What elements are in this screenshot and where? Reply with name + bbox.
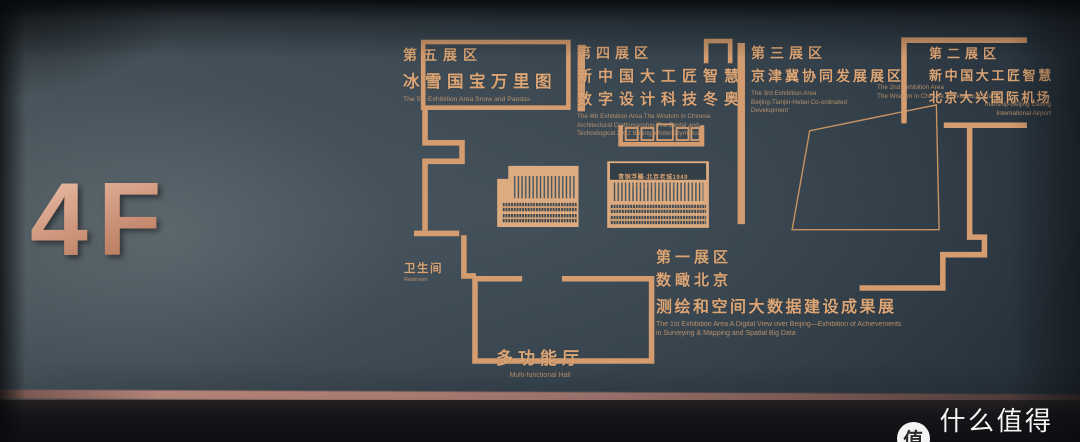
area5-en: The 5th Exhibition Area Snow and Pandas xyxy=(403,96,557,103)
photo-floor-directory-sign: 4F xyxy=(0,0,1080,442)
area1-zh-1: 第一展区 xyxy=(656,246,901,267)
label-area4: 第四展区 新中国大工匠智慧 数字设计科技冬奥 The 4th Exhibitio… xyxy=(577,43,745,139)
smzdm-watermark: 值 什么值得买 xyxy=(897,401,1080,442)
directory-sign-board: 4F xyxy=(0,0,1080,400)
plan-seating-a-screenband xyxy=(514,176,575,198)
area2-en-2: The Wisdom in Chinese Architectural Craf… xyxy=(877,93,1051,102)
area3-zh-1: 第三展区 xyxy=(751,43,904,63)
area4-zh-1: 第四展区 xyxy=(577,43,745,63)
area2-zh-1: 第二展区 xyxy=(929,43,1054,62)
area5-zh-1: 第五展区 xyxy=(403,45,557,65)
area2-en-4: International Airport xyxy=(877,110,1051,119)
area2-en-3: manship-Beijing Daxing xyxy=(877,101,1051,110)
area1-zh-2: 数瞰北京 xyxy=(656,269,901,290)
hall-en: Multi-functional Hall xyxy=(468,372,612,379)
restroom-en: Restroom xyxy=(404,277,443,283)
plan-seating-a-row2-rail xyxy=(503,217,577,219)
smzdm-watermark-text: 什么值得买 xyxy=(940,401,1080,442)
label-multifunctional-hall: 多功能厅 Multi-functional Hall xyxy=(468,344,612,379)
plan-seating-b-row1-rail xyxy=(610,208,706,210)
area4-zh-2: 新中国大工匠智慧 xyxy=(577,65,745,86)
label-exhibit-plaque: 青铜浮雕-北京老城1949 Beijing Old City 1949 xyxy=(601,174,705,192)
plaque-en: Beijing Old City 1949 xyxy=(601,183,705,188)
label-area5: 第五展区 冰雪国宝万里图 The 5th Exhibition Area Sno… xyxy=(403,45,557,103)
restroom-zh: 卫生间 xyxy=(404,260,443,276)
area4-en-1: The 4th Exhibition Area The Wisdom in Ch… xyxy=(577,113,745,122)
area4-zh-3: 数字设计科技冬奥 xyxy=(577,88,745,109)
area1-zh-3: 测绘和空间大数据建设成果展 xyxy=(656,293,901,317)
label-area2-en: The 2nd Exhibition Area The Wisdom in Ch… xyxy=(877,84,1051,118)
floor-number: 4F xyxy=(30,168,171,272)
area2-zh-2: 新中国大工匠智慧 xyxy=(929,65,1054,84)
area1-en-1: The 1st Exhibition Area A Digital View o… xyxy=(656,320,901,329)
area4-en-2: Architectural Craftsmanship-The Digital … xyxy=(577,122,745,131)
label-restroom: 卫生间 Restroom xyxy=(404,260,443,283)
plan-seating-a-row1-rail xyxy=(503,206,577,208)
area4-en-3: Technological 2022 Beijing Winter Olympi… xyxy=(577,130,745,139)
plaque-zh: 青铜浮雕-北京老城1949 xyxy=(601,174,705,183)
plan-large-hall-outline xyxy=(792,105,939,230)
plan-seating-b-row2-rail xyxy=(610,219,706,221)
area1-en-2: in Surveying & Mapping and Spatial Big D… xyxy=(656,329,901,338)
plan-wall-restroom-right xyxy=(464,235,476,276)
plan-wall-left xyxy=(425,108,462,231)
hall-zh: 多功能厅 xyxy=(468,344,612,369)
smzdm-logo-icon: 值 xyxy=(897,422,930,442)
area5-zh-2: 冰雪国宝万里图 xyxy=(403,68,557,92)
area3-zh-2: 京津冀协同发展展区 xyxy=(751,66,904,86)
area2-en-1: The 2nd Exhibition Area xyxy=(877,84,1051,93)
label-area1: 第一展区 数瞰北京 测绘和空间大数据建设成果展 The 1st Exhibiti… xyxy=(656,246,901,338)
